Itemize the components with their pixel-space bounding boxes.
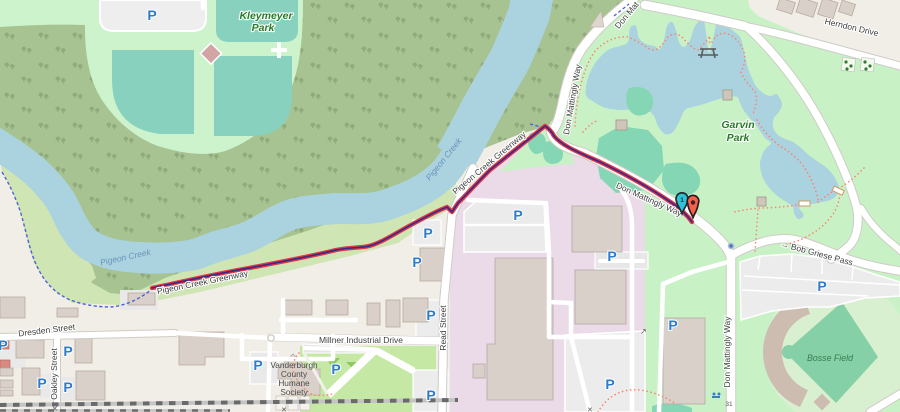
svg-text:Society: Society — [280, 387, 308, 397]
svg-text:P: P — [423, 225, 432, 241]
svg-text:P: P — [426, 387, 435, 403]
svg-text:P: P — [37, 375, 46, 391]
svg-text:✕: ✕ — [281, 407, 287, 412]
svg-text:1: 1 — [680, 197, 684, 204]
svg-text:P: P — [513, 207, 522, 223]
svg-text:Bosse Field: Bosse Field — [807, 353, 854, 363]
svg-text:Park: Park — [252, 22, 276, 34]
svg-text:P: P — [607, 248, 616, 264]
svg-text:↗: ↗ — [640, 327, 647, 336]
svg-text:P: P — [63, 379, 72, 395]
svg-text:P: P — [412, 254, 421, 270]
svg-text:P: P — [63, 343, 72, 359]
svg-text:P: P — [253, 357, 262, 373]
svg-text:Oakley Street: Oakley Street — [49, 348, 59, 400]
svg-text:✕: ✕ — [52, 406, 58, 412]
svg-text:Kleymeyer: Kleymeyer — [239, 10, 293, 22]
svg-text:Don Mattingly Way: Don Mattingly Way — [722, 316, 732, 388]
svg-text:P: P — [147, 7, 156, 23]
svg-text:P: P — [817, 278, 826, 294]
svg-text:Millner Industrial Drive: Millner Industrial Drive — [319, 335, 403, 345]
svg-text:P: P — [426, 307, 435, 323]
svg-text:Read Street: Read Street — [438, 305, 448, 351]
svg-text:P: P — [668, 317, 677, 333]
svg-text:✕: ✕ — [587, 407, 593, 412]
svg-text:Park: Park — [727, 132, 751, 144]
svg-text:P: P — [605, 376, 614, 392]
svg-text:P: P — [0, 337, 8, 353]
svg-text:P: P — [331, 361, 340, 377]
svg-text:31: 31 — [725, 401, 733, 408]
svg-text:Garvin: Garvin — [721, 119, 754, 131]
